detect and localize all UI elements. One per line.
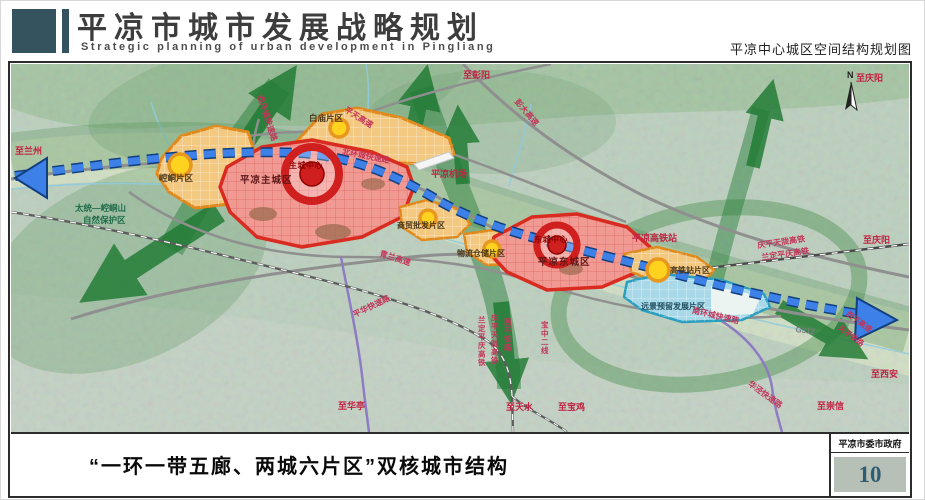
label-rail-xiping: 西平铁路 <box>503 318 511 352</box>
planning-document-page: 平凉市城市发展战略规划 Strategic planning of urban … <box>0 0 925 500</box>
compass-n-label: N <box>847 70 854 80</box>
planning-map: N 至兰州 太统—崆峒山 自然保护区 崆峒片区 平凉主城区 主城中心 白庙片区 … <box>11 64 909 432</box>
label-zone-logistics: 物流仓储片区 <box>457 250 505 259</box>
header: 平凉市城市发展战略规划 Strategic planning of urban … <box>1 1 925 61</box>
header-accent-bar <box>62 9 69 53</box>
label-main-center: 主城中心 <box>289 162 323 171</box>
label-zone-east-city: 平凉东城区 <box>538 258 591 268</box>
label-to-pengyang: 至彭阳 <box>463 71 490 81</box>
footer-caption: “一环一带五廊、两城六片区”双核城市结构 <box>89 450 509 479</box>
label-to-qingyang-top: 至庆阳 <box>856 74 883 84</box>
label-rail-qptl-vertical: 庆平天陇高铁 <box>490 314 498 365</box>
map-subtitle: 平凉中心城区空间结构规划图 <box>730 39 912 58</box>
label-to-baoji: 至宝鸡 <box>558 403 585 413</box>
label-rail-ldpq-vertical: 兰定平庆高铁 <box>477 316 485 367</box>
label-rail-baozhong: 宝中二线 <box>540 321 548 355</box>
label-zone-trade: 商贸批发片区 <box>397 222 445 231</box>
label-east-center: 东城中心 <box>534 236 568 245</box>
label-to-qingyang-east: 至庆阳 <box>863 236 890 246</box>
label-zone-hsr: 高铁站片区 <box>670 267 710 276</box>
label-zone-kongtong: 崆峒片区 <box>159 174 193 183</box>
content-frame: N 至兰州 太统—崆峒山 自然保护区 崆峒片区 平凉主城区 主城中心 白庙片区 … <box>8 61 912 498</box>
label-to-huating: 至华亭 <box>338 402 365 412</box>
label-airport: 平凉机场 <box>431 170 467 180</box>
label-nature-reserve-1: 太统—崆峒山 <box>75 204 126 213</box>
label-to-lanzhou: 至兰州 <box>15 147 42 157</box>
label-to-tianshui: 至天水 <box>506 403 533 413</box>
footer-agency: 平凉市委市政府 <box>831 434 909 453</box>
label-hsr-station: 平凉高铁站 <box>632 234 677 244</box>
label-nature-reserve-2: 自然保护区 <box>83 216 126 225</box>
label-to-chongxin: 至崇信 <box>817 402 844 412</box>
label-to-xian: 至西安 <box>871 370 898 380</box>
label-zone-baimiao: 白庙片区 <box>309 114 343 123</box>
footer-right-box: 平凉市委市政府 10 <box>829 434 909 498</box>
footer: “一环一带五廊、两城六片区”双核城市结构 平凉市委市政府 10 <box>11 432 909 496</box>
node-hsr <box>647 259 669 281</box>
page-number: 10 <box>834 457 906 492</box>
header-logo-block <box>12 9 56 53</box>
page-title-english: Strategic planning of urban development … <box>81 41 496 53</box>
label-zone-main-city: 平凉主城区 <box>240 176 293 186</box>
